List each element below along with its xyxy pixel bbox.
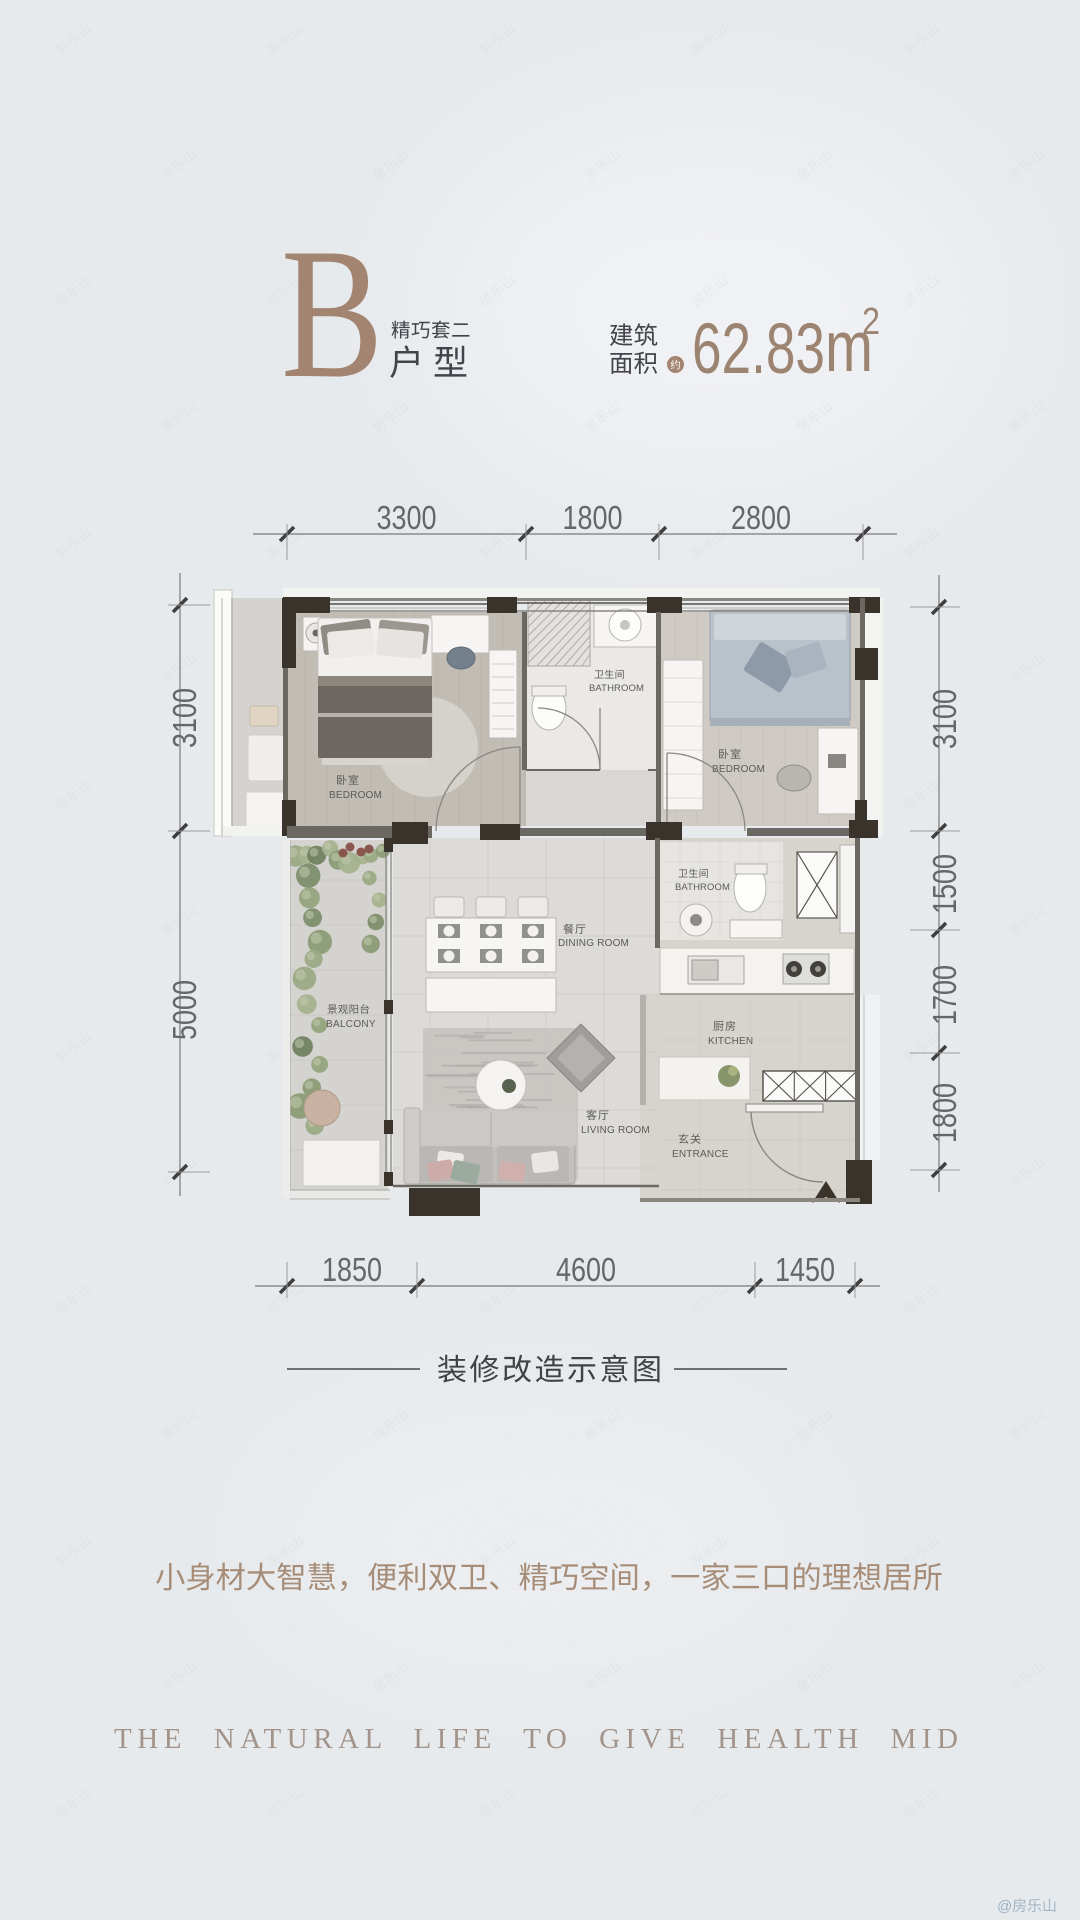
svg-text:LIVING ROOM: LIVING ROOM bbox=[581, 1125, 650, 1136]
svg-text:1800: 1800 bbox=[926, 1083, 963, 1143]
svg-text:@: @ bbox=[997, 1898, 1012, 1915]
svg-text:62.83: 62.83 bbox=[692, 310, 825, 389]
svg-text:DINING ROOM: DINING ROOM bbox=[558, 938, 629, 949]
svg-text:1800: 1800 bbox=[563, 499, 623, 536]
svg-text:1850: 1850 bbox=[322, 1251, 382, 1288]
svg-text:BALCONY: BALCONY bbox=[326, 1019, 376, 1030]
svg-text:KITCHEN: KITCHEN bbox=[708, 1036, 753, 1047]
svg-text:5000: 5000 bbox=[166, 980, 203, 1040]
svg-text:BATHROOM: BATHROOM bbox=[675, 882, 730, 893]
svg-text:BATHROOM: BATHROOM bbox=[589, 683, 644, 694]
svg-text:THE NATURAL LIFE TO GIVE HEALT: THE NATURAL LIFE TO GIVE HEALTH MID bbox=[114, 1723, 958, 1755]
svg-text:3300: 3300 bbox=[377, 499, 437, 536]
svg-text:1500: 1500 bbox=[926, 854, 963, 914]
svg-text:2800: 2800 bbox=[731, 499, 791, 536]
svg-text:3100: 3100 bbox=[926, 689, 963, 749]
svg-text:1450: 1450 bbox=[775, 1251, 835, 1288]
svg-text:BEDROOM: BEDROOM bbox=[329, 790, 382, 801]
svg-text:ENTRANCE: ENTRANCE bbox=[672, 1149, 729, 1160]
svg-text:4600: 4600 bbox=[556, 1251, 616, 1288]
svg-text:1700: 1700 bbox=[926, 965, 963, 1025]
svg-text:2: 2 bbox=[862, 301, 880, 343]
svg-text:B: B bbox=[281, 210, 383, 417]
svg-text:3100: 3100 bbox=[166, 688, 203, 748]
